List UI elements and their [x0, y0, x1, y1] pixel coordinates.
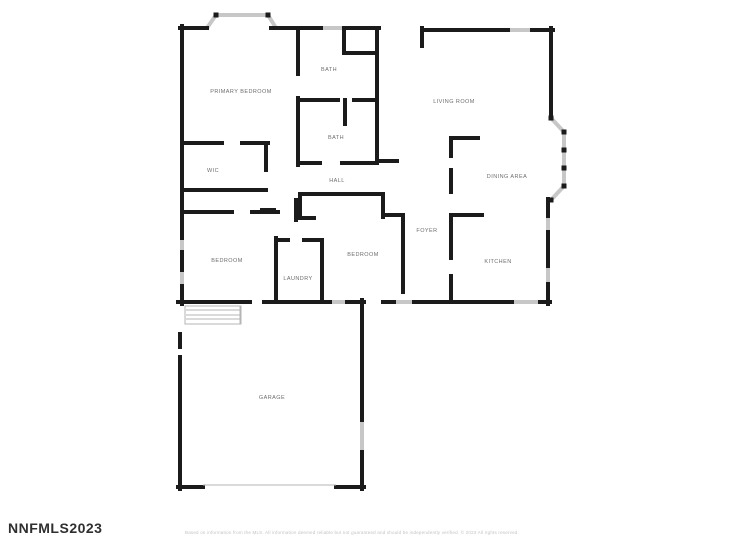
bay-window-post — [562, 130, 567, 135]
watermark-mls-id: NNFMLS2023 — [8, 520, 102, 536]
bay-window-post — [214, 13, 219, 18]
bay-window-post — [549, 116, 554, 121]
bay-window-post — [549, 198, 554, 203]
room-label-primary-bedroom: PRIMARY BEDROOM — [210, 89, 272, 95]
floor-plan-page: PRIMARY BEDROOMBATHBATHWICHALLBEDROOMLAU… — [0, 0, 747, 560]
bay-window-post — [562, 148, 567, 153]
bay-window-post — [562, 184, 567, 189]
room-label-wic: WIC — [207, 168, 219, 174]
room-label-garage: GARAGE — [259, 395, 285, 401]
bay-window-post — [562, 166, 567, 171]
bay-window-post — [266, 13, 271, 18]
room-label-kitchen: KITCHEN — [484, 259, 511, 265]
room-label-bath-1: BATH — [321, 67, 337, 73]
room-label-laundry: LAUNDRY — [283, 276, 312, 282]
room-label-dining-area: DINING AREA — [487, 174, 527, 180]
room-label-bedroom-left: BEDROOM — [211, 258, 243, 264]
room-label-hall: HALL — [329, 178, 345, 184]
room-label-foyer: FOYER — [416, 228, 437, 234]
floor-plan: PRIMARY BEDROOMBATHBATHWICHALLBEDROOMLAU… — [0, 0, 747, 560]
room-label-living-room: LIVING ROOM — [433, 99, 475, 105]
disclaimer-text: Based on information from the MLS. All i… — [185, 530, 565, 535]
room-label-bedroom-middle: BEDROOM — [347, 252, 379, 258]
room-label-bath-2: BATH — [328, 135, 344, 141]
